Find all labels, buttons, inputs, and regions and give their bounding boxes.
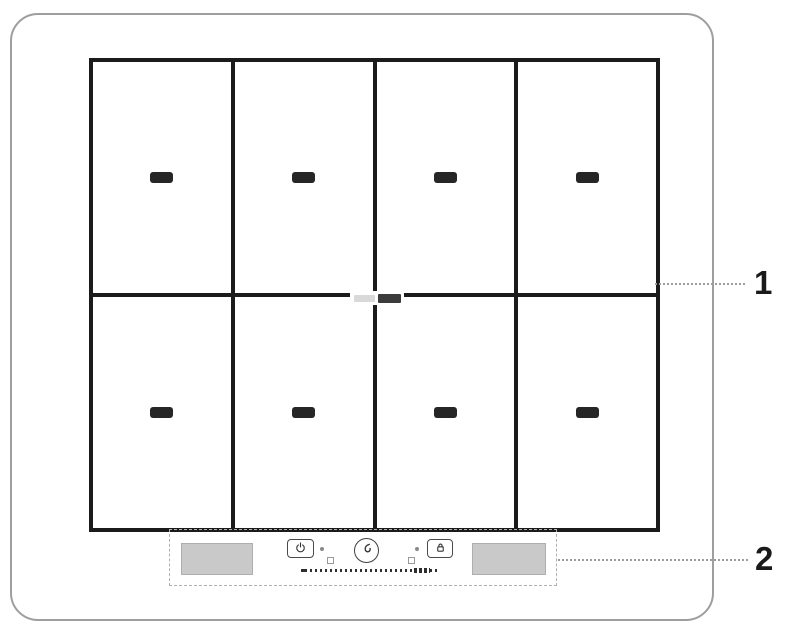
pan-position-mark-icon xyxy=(292,407,315,418)
left-display-area xyxy=(181,543,253,575)
power-icon xyxy=(295,540,306,558)
cooking-zone xyxy=(516,295,658,530)
callout-1-leader-line xyxy=(655,283,745,285)
brand-logo xyxy=(350,291,404,305)
lock-indicator-dot xyxy=(415,547,419,551)
dial-button xyxy=(354,538,379,563)
callout-2-label: 2 xyxy=(755,542,773,575)
slider-marker-square-right xyxy=(408,557,415,564)
figure-induction-hob-diagram: 1 2 xyxy=(0,0,793,625)
slider-marker-square-left xyxy=(327,557,334,564)
pan-position-mark-icon xyxy=(150,407,173,418)
pan-position-mark-icon xyxy=(434,172,457,183)
pan-position-mark-icon xyxy=(150,172,173,183)
cooking-zone xyxy=(516,60,658,295)
power-button xyxy=(287,539,314,558)
lock-button xyxy=(427,539,453,558)
pan-position-mark-icon xyxy=(434,407,457,418)
cooking-zone xyxy=(91,60,233,295)
cooking-zone xyxy=(375,60,517,295)
brand-logo-dark-segment xyxy=(378,294,401,303)
power-slider-tick-marks xyxy=(310,568,438,573)
lock-icon xyxy=(435,540,446,558)
cooking-zone xyxy=(233,60,375,295)
brand-logo-light-segment xyxy=(354,295,375,302)
cooking-zone xyxy=(375,295,517,530)
cooking-zone xyxy=(233,295,375,530)
power-indicator-dot xyxy=(320,547,324,551)
pan-position-mark-icon xyxy=(576,407,599,418)
pan-position-mark-icon xyxy=(292,172,315,183)
right-display-area xyxy=(472,543,546,575)
dial-icon xyxy=(360,541,374,560)
callout-2-leader-line xyxy=(558,559,748,561)
callout-1-label: 1 xyxy=(754,266,772,299)
pan-position-mark-icon xyxy=(576,172,599,183)
cooking-zone xyxy=(91,295,233,530)
